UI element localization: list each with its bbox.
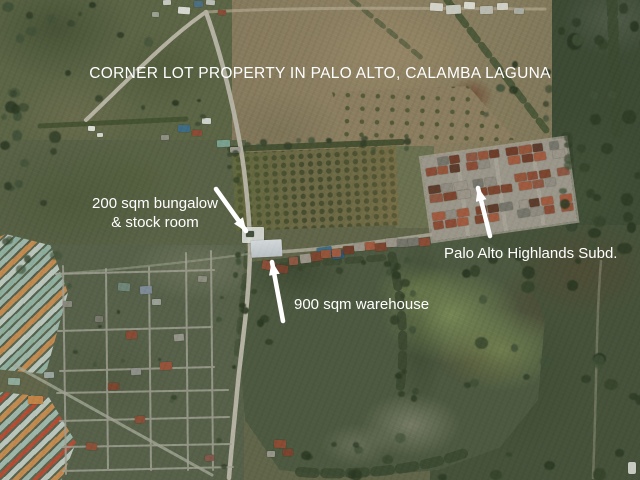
tree-blob [141, 105, 145, 110]
tree-blob [560, 199, 570, 209]
tree-blob [622, 110, 635, 124]
tree-blob [236, 258, 242, 264]
tree-blob [1, 114, 7, 120]
tree-blob [402, 369, 408, 374]
tree-blob [509, 86, 518, 95]
tree-blob [232, 150, 239, 157]
tree-blob [240, 284, 246, 289]
tree-blob [621, 193, 633, 206]
tree-blob [216, 438, 221, 444]
tree-blob [265, 339, 273, 345]
tree-blob [200, 114, 206, 119]
tree-blob [594, 35, 604, 45]
tree-blob [172, 100, 179, 107]
tree-blob [479, 295, 487, 304]
tree-blob [260, 315, 269, 322]
tree-blob [627, 222, 636, 232]
photo-title: CORNER LOT PROPERTY IN PALO ALTO, CALAMB… [0, 65, 640, 83]
tree-blob [121, 359, 125, 363]
tree-blob [49, 131, 61, 143]
tree-blob [360, 140, 367, 148]
tree-blob [540, 356, 554, 368]
tree-blob [601, 143, 612, 154]
tree-blob [593, 355, 605, 369]
tree-blob [470, 379, 479, 387]
tree-blob [590, 114, 600, 125]
tree-blob [308, 137, 315, 144]
tree-blob [245, 142, 251, 148]
tree-blob [348, 470, 356, 479]
tree-blob [564, 142, 572, 149]
tree-blob [89, 2, 96, 8]
tree-blob [12, 130, 21, 141]
tree-blob [475, 337, 489, 350]
tree-blob [630, 21, 639, 32]
bungalow-label-line1: 200 sqm bungalow [82, 194, 228, 213]
tree-blob [235, 252, 241, 258]
tree-blob [5, 101, 17, 113]
bungalow-label-line2: & stock room [82, 213, 228, 232]
tree-blob [590, 91, 598, 100]
warehouse-label: 900 sqm warehouse [294, 296, 429, 313]
tree-blob [615, 449, 624, 457]
tree-blob [251, 289, 257, 293]
tree-blob [227, 152, 233, 157]
tree-blob [572, 18, 581, 27]
tree-blob [221, 464, 227, 469]
tree-blob [593, 468, 605, 480]
tree-blob [361, 260, 366, 265]
tree-blob [522, 266, 535, 279]
tree-blob [511, 344, 518, 351]
tree-blob [67, 283, 72, 289]
tree-blob [564, 161, 573, 170]
tree-blob [567, 280, 578, 291]
tree-blob [284, 142, 291, 149]
tree-blob [8, 88, 20, 98]
tree-blob [483, 112, 488, 118]
tree-blob [216, 317, 222, 321]
tree-blob [24, 255, 31, 263]
tree-blob [255, 144, 260, 149]
tree-blob [78, 12, 82, 16]
tree-blob [438, 474, 446, 480]
tree-blob [260, 139, 267, 147]
tree-blob [6, 236, 13, 243]
tree-blob [579, 163, 589, 172]
tree-blob [334, 261, 339, 265]
tree-blob [391, 268, 398, 275]
tree-blob [581, 375, 591, 383]
tree-blob [588, 228, 601, 238]
tree-blob [296, 138, 301, 143]
tree-blob [117, 310, 121, 314]
tree-blob [95, 95, 103, 102]
tree-blob [395, 433, 405, 443]
tree-blob [619, 3, 629, 13]
tree-blob [544, 461, 554, 470]
tree-blob [144, 37, 153, 47]
tree-blob [496, 84, 506, 92]
tree-blob [411, 395, 417, 402]
tree-blob [545, 85, 553, 93]
tree-blob [604, 379, 618, 390]
tree-blob [412, 388, 420, 395]
tree-blob [543, 101, 549, 107]
tree-blob [170, 399, 174, 403]
tree-blob [2, 2, 14, 12]
tree-blob [232, 365, 236, 369]
tree-blob [470, 265, 480, 277]
tree-blob [336, 267, 343, 274]
tree-blob [521, 281, 535, 293]
annotated-satellite-photo: CORNER LOT PROPERTY IN PALO ALTO, CALAMB… [0, 0, 640, 480]
tree-blob [577, 144, 586, 153]
tree-blob [404, 138, 411, 145]
tree-blob [400, 279, 410, 287]
tree-blob [298, 266, 303, 271]
tree-blob [220, 296, 224, 299]
tree-blob [233, 177, 239, 183]
tree-blob [16, 265, 27, 273]
tree-blob [326, 138, 332, 143]
tree-blob [305, 454, 312, 460]
tree-blob [26, 12, 33, 19]
tree-blob [241, 307, 249, 314]
tree-blob [543, 115, 549, 122]
tree-blob [586, 189, 596, 198]
tree-blob [26, 27, 37, 37]
tree-blob [506, 452, 512, 457]
tree-blob [581, 204, 588, 210]
tree-blob [404, 146, 409, 151]
tree-blob [623, 212, 632, 222]
tree-blob [15, 180, 23, 187]
tree-blob [227, 165, 232, 169]
tree-blob [73, 350, 77, 354]
tree-blob [490, 470, 501, 480]
tree-blob [617, 243, 632, 255]
tree-blob [331, 442, 337, 447]
tree-blob [523, 374, 530, 380]
tree-blob [47, 14, 57, 24]
tree-blob [233, 272, 239, 278]
tree-blob [197, 99, 201, 102]
tree-blob [390, 315, 399, 324]
tree-blob [16, 34, 24, 43]
tree-blob [384, 261, 390, 266]
tree-blob [18, 103, 29, 111]
tree-blob [93, 362, 98, 367]
tree-blob [572, 34, 583, 46]
tree-blob [559, 188, 567, 194]
tree-blob [0, 141, 10, 150]
tree-blob [98, 325, 102, 328]
tree-blob [558, 27, 566, 34]
bungalow-label: 200 sqm bungalow & stock room [82, 194, 228, 232]
tree-blob [608, 91, 616, 99]
tree-blob [382, 455, 393, 464]
tree-blob [634, 172, 640, 179]
tree-blob [50, 148, 58, 155]
tree-blob [67, 20, 75, 27]
tree-blob [20, 159, 29, 167]
tree-blob [117, 32, 125, 38]
tree-blob [158, 358, 161, 361]
tree-blob [398, 391, 405, 396]
tree-blob [409, 326, 416, 334]
tree-blob [593, 216, 606, 227]
tree-blob [50, 251, 61, 260]
tree-blob [371, 147, 376, 152]
subdivision-label: Palo Alto Highlands Subd. [444, 245, 617, 262]
tree-blob [404, 257, 411, 263]
tree-blob [395, 373, 403, 379]
tree-blob [195, 122, 200, 126]
tree-blob [40, 200, 47, 206]
tree-blob [564, 133, 573, 141]
